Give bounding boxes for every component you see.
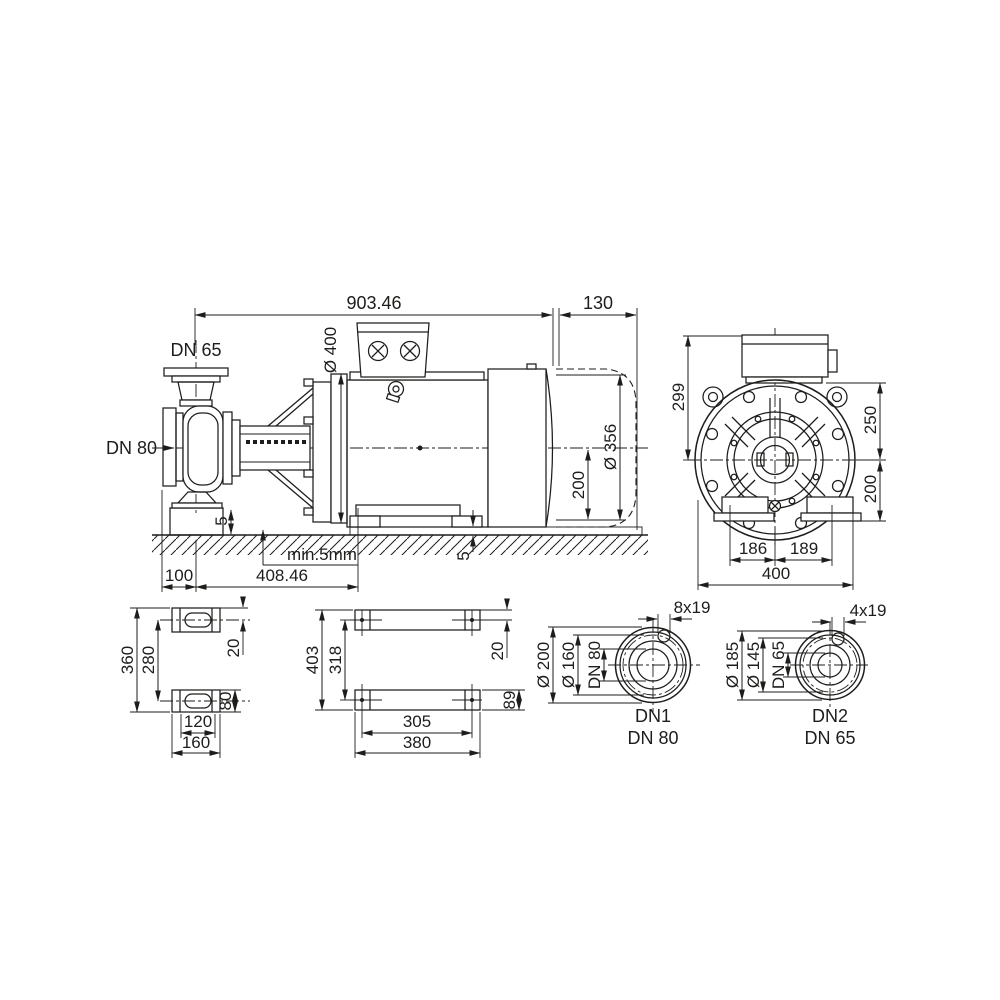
motor-foot-web bbox=[356, 505, 460, 516]
dn2-size: DN 65 bbox=[804, 728, 855, 748]
dim-dn2-outer: Ø 185 bbox=[723, 642, 742, 688]
dim-motor-shim: 5 bbox=[454, 551, 473, 560]
side-view: 903.46 130 DN 65 DN 80 Ø 400 Ø 356 200 5… bbox=[106, 293, 648, 592]
dim-upper-height: 250 bbox=[861, 406, 880, 434]
dim-pumpfeet-pitch: 280 bbox=[139, 646, 158, 674]
dim-motor-diameter: Ø 356 bbox=[601, 424, 620, 470]
dim-lower-height: 200 bbox=[861, 475, 880, 503]
terminal-box bbox=[357, 323, 429, 377]
dim-dn2-bore: DN 65 bbox=[769, 641, 788, 689]
dim-feet-span: 408.46 bbox=[256, 566, 308, 585]
motor-foot-plan: 403 318 20 89 305 380 bbox=[303, 600, 525, 758]
motor-rear-housing bbox=[488, 369, 546, 527]
dim-pumpfeet-foot-len: 160 bbox=[182, 733, 210, 752]
dim-foot-right: 189 bbox=[790, 539, 818, 558]
pump-foot-plan: 360 280 20 80 120 160 bbox=[118, 598, 250, 758]
dim-rear-length: 130 bbox=[583, 293, 613, 313]
cooling-slots bbox=[246, 440, 306, 444]
dim-dn2-holes: 4x19 bbox=[850, 601, 887, 620]
dim-dn1-bore: DN 80 bbox=[585, 641, 604, 689]
dim-pumpfeet-pitch-w: 120 bbox=[184, 712, 212, 731]
dim-foot-offset: 100 bbox=[165, 566, 193, 585]
flange-dn1-view: 8x19 Ø 200 Ø 160 DN 80 DN1 DN 80 bbox=[534, 598, 710, 748]
dim-overall-height: 299 bbox=[669, 383, 688, 411]
dim-dn1-outer: Ø 200 bbox=[534, 642, 553, 688]
pump-foot-plate bbox=[172, 503, 222, 508]
flange-bolt bbox=[304, 379, 313, 386]
dim-pumpfeet-length: 360 bbox=[118, 646, 137, 674]
suction-port-label: DN 65 bbox=[170, 340, 221, 360]
flange-dn2-view: 4x19 Ø 185 Ø 145 DN 65 DN2 DN 65 bbox=[723, 601, 886, 748]
dim-shaft-height: 200 bbox=[569, 471, 588, 499]
dn2-name: DN2 bbox=[812, 706, 848, 726]
drawing-canvas: 903.46 130 DN 65 DN 80 Ø 400 Ø 356 200 5… bbox=[0, 0, 1000, 1000]
motor-grout-strip bbox=[350, 527, 642, 535]
terminal-box-front bbox=[742, 335, 837, 383]
dn1-name: DN1 bbox=[635, 706, 671, 726]
motor-rail-top bbox=[350, 610, 512, 636]
flange-bolt bbox=[304, 417, 313, 424]
dim-motorfeet-pitch: 318 bbox=[326, 646, 345, 674]
lifting-lug bbox=[703, 387, 723, 407]
bearing-frame bbox=[223, 388, 313, 508]
pump-pedestal bbox=[178, 492, 216, 503]
dim-foot-left: 186 bbox=[739, 539, 767, 558]
dim-motorfeet-rail-len: 380 bbox=[403, 733, 431, 752]
dim-pumpfeet-width: 80 bbox=[216, 692, 235, 711]
dn1-size: DN 80 bbox=[627, 728, 678, 748]
pump-casing bbox=[172, 406, 223, 508]
pump-foot-top bbox=[160, 608, 250, 632]
dim-pump-shim: 5 bbox=[212, 516, 231, 525]
grout-note: min.5mm bbox=[287, 545, 357, 564]
dim-dn2-bolt-circle: Ø 145 bbox=[744, 642, 763, 688]
flange-bolt bbox=[304, 508, 313, 515]
front-view: 299 250 200 186 189 400 bbox=[669, 328, 886, 590]
dim-motorfeet-length: 403 bbox=[303, 646, 322, 674]
dim-flange-diameter: Ø 400 bbox=[321, 327, 340, 373]
dim-total-length: 903.46 bbox=[346, 293, 401, 313]
dim-dn1-holes: 8x19 bbox=[674, 598, 711, 617]
front-feet bbox=[714, 497, 861, 521]
motor-body bbox=[347, 323, 636, 527]
lifting-eye bbox=[385, 380, 405, 403]
motor-foot-pad bbox=[452, 516, 482, 527]
dim-motorfeet-pitch-w: 305 bbox=[403, 712, 431, 731]
lifting-lug bbox=[827, 387, 847, 407]
dim-width: 400 bbox=[762, 564, 790, 583]
dim-pumpfeet-slot: 20 bbox=[224, 639, 243, 658]
flange-bolt bbox=[304, 470, 313, 477]
ground-hatch bbox=[152, 535, 648, 555]
dim-dn1-bolt-circle: Ø 160 bbox=[559, 642, 578, 688]
dim-motorfeet-width: 89 bbox=[500, 691, 519, 710]
dim-motorfeet-offset: 20 bbox=[488, 642, 507, 661]
discharge-flange bbox=[163, 408, 183, 486]
pump-foot-bottom bbox=[160, 690, 250, 712]
discharge-port-label: DN 80 bbox=[106, 438, 157, 458]
motor-foot-pad bbox=[350, 516, 380, 527]
pump-dimensional-drawing: 903.46 130 DN 65 DN 80 Ø 400 Ø 356 200 5… bbox=[0, 0, 1000, 1000]
